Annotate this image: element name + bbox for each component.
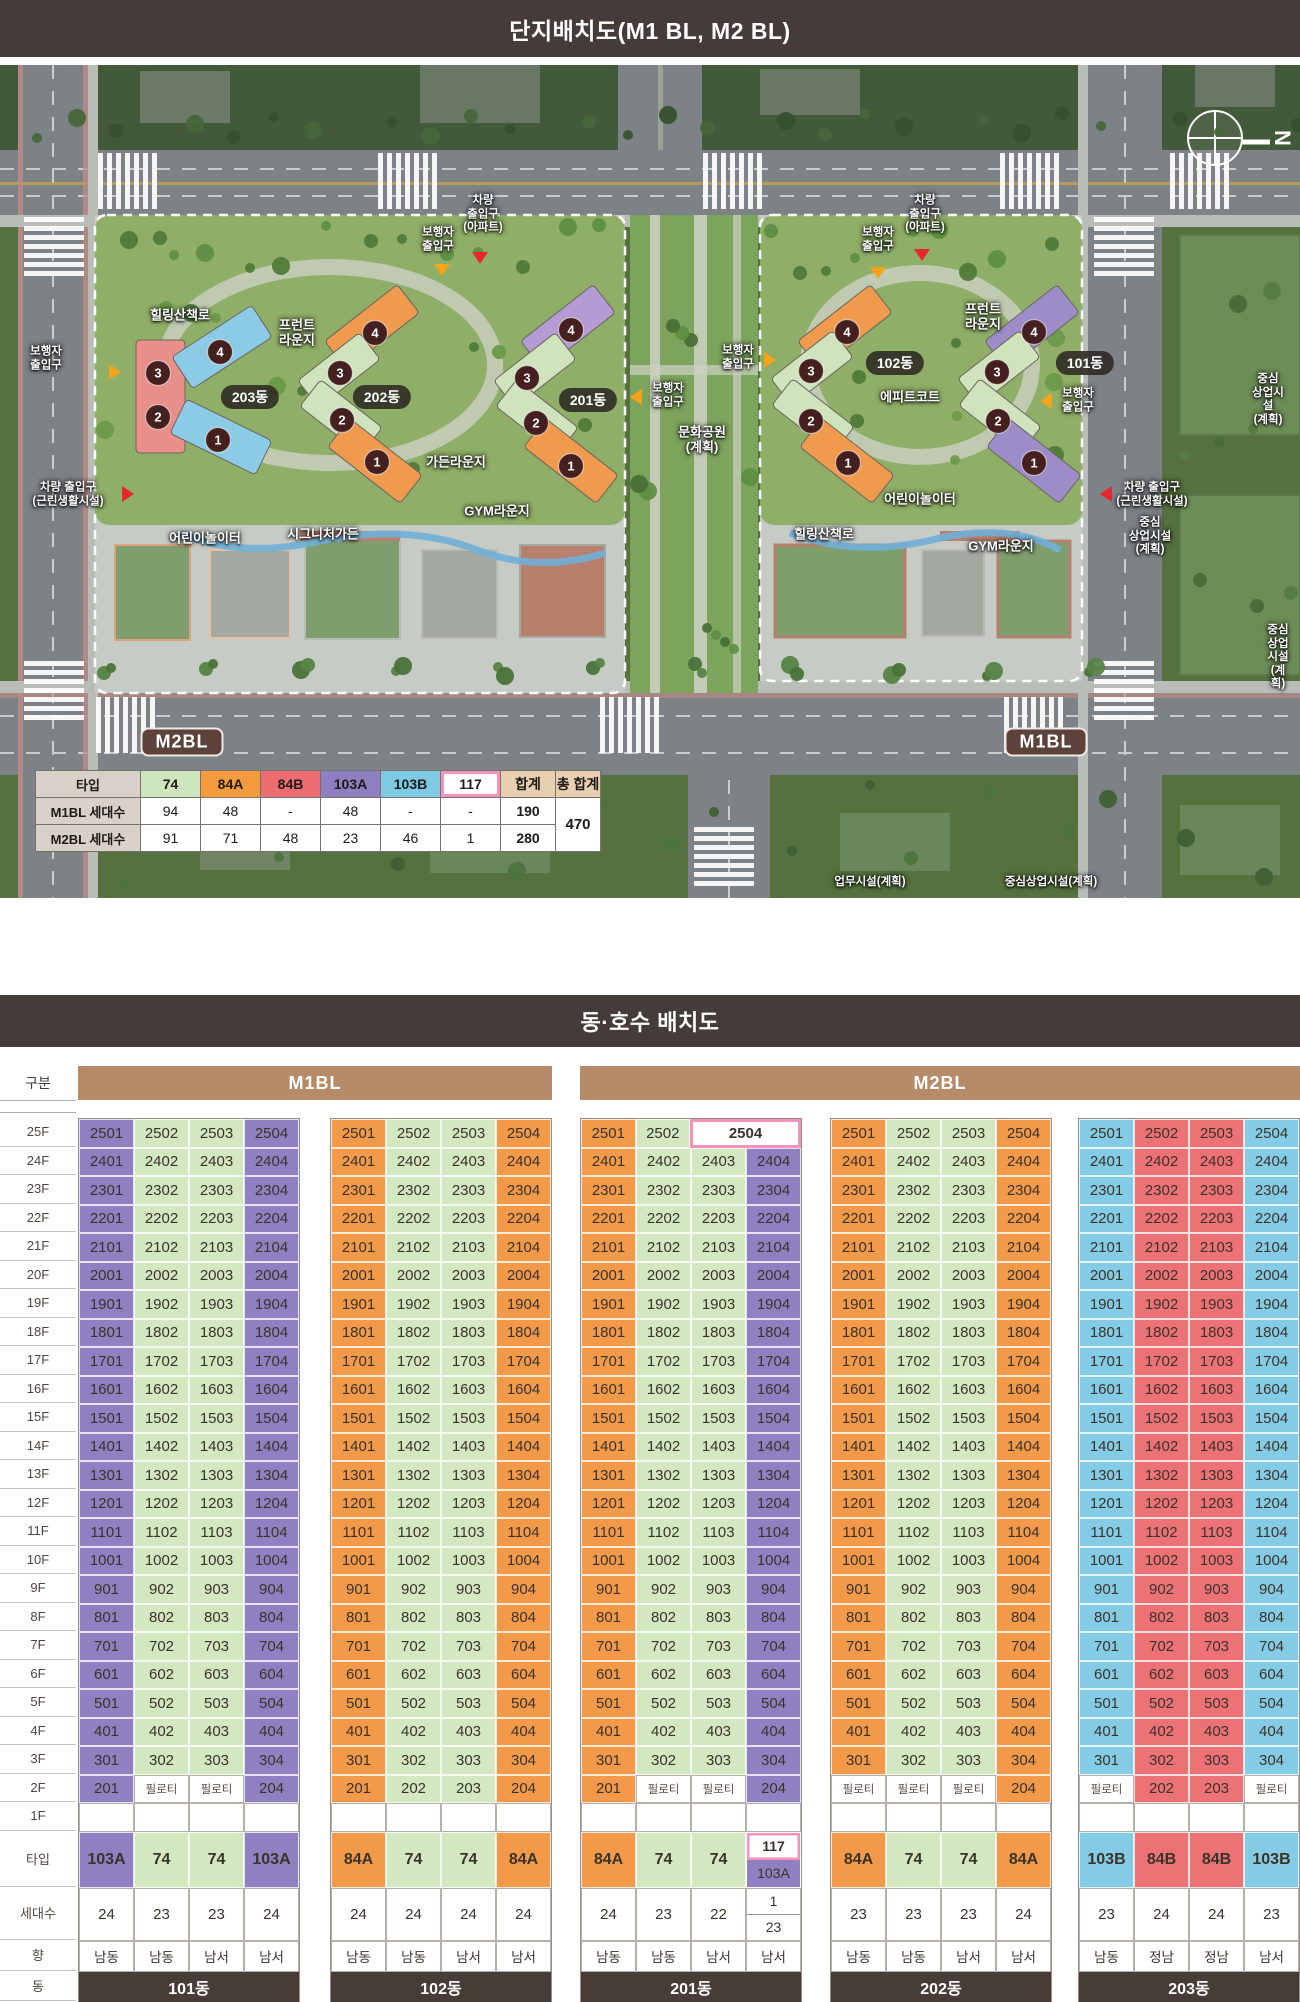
unit-cell <box>886 1803 941 1832</box>
unit-cell: 2001 <box>79 1262 134 1291</box>
entrance-label: 보행자 출입구 <box>1062 387 1094 414</box>
type-103B: 103B <box>381 771 441 798</box>
floor-label: 25F <box>0 1118 76 1147</box>
unit-cell: 2303 <box>691 1176 746 1205</box>
floor-label: 1F <box>0 1802 76 1831</box>
unit-cell: 1102 <box>636 1518 691 1547</box>
floor-row: 1401140214031404 <box>831 1433 1051 1462</box>
m1bl-total: 190 <box>501 798 556 825</box>
type-74: 74 <box>141 771 201 798</box>
type-row: 84A747484A <box>331 1832 551 1888</box>
unit-cell: 1702 <box>1134 1347 1189 1376</box>
unit-cell: 2302 <box>886 1176 941 1205</box>
floor-row: 2401240224032404 <box>581 1148 801 1177</box>
unit-cell: 1502 <box>886 1404 941 1433</box>
direction-row: 남동남동남서남서 <box>831 1941 1051 1972</box>
floor-row: 1901190219031904 <box>831 1290 1051 1319</box>
floor-row: 601602603604 <box>1079 1661 1299 1690</box>
unit-cell: 74 <box>886 1832 941 1888</box>
map-area-label: 프런트 라운지 <box>279 318 315 349</box>
unit-cell: 702 <box>386 1632 441 1661</box>
unit-cell: 1102 <box>1134 1518 1189 1547</box>
entrance-label: 차량 출입구 (근린생활시설) <box>32 481 103 508</box>
unit-cell: 504 <box>746 1689 801 1718</box>
unit-cell: 2301 <box>581 1176 636 1205</box>
unit-cell: 2403 <box>941 1148 996 1177</box>
unit-cell: 2204 <box>496 1205 551 1234</box>
unit-cell: 남서 <box>441 1941 496 1972</box>
unit-cell: 802 <box>886 1604 941 1633</box>
map-area-label: GYM라운지 <box>464 503 530 518</box>
count-value: 1 <box>747 1889 800 1915</box>
unit-cell: 604 <box>244 1661 299 1690</box>
direction-row: 남동남동남서남서 <box>79 1941 299 1972</box>
unit-cell: 2203 <box>691 1205 746 1234</box>
unit-cell: 23 <box>1244 1888 1299 1941</box>
floor-row: 2401240224032404 <box>831 1148 1051 1177</box>
unit-cell: 1501 <box>831 1404 886 1433</box>
floor-row-1f <box>1079 1803 1299 1832</box>
unit-cell: 1803 <box>1189 1319 1244 1348</box>
unit-cell: 2402 <box>636 1148 691 1177</box>
unit-cell: 23 <box>134 1888 189 1941</box>
floor-row: 701702703704 <box>1079 1632 1299 1661</box>
unit-cell: 202 <box>1134 1775 1189 1804</box>
unit-cell: 2202 <box>636 1205 691 1234</box>
floor-row: 2001200220032004 <box>79 1262 299 1291</box>
unit-cell: 2001 <box>831 1262 886 1291</box>
map-area-label: GYM라운지 <box>968 538 1034 553</box>
unit-cell: 2401 <box>79 1148 134 1177</box>
floor-row: 1201120212031204 <box>831 1490 1051 1519</box>
unit-type-summary-table: 타입 74 84A 84B 103A 103B 117 합계 총 합계 M1BL… <box>35 770 601 852</box>
floor-row: 1901190219031904 <box>79 1290 299 1319</box>
unit-cell: 1202 <box>134 1490 189 1519</box>
unit-cell: 남동 <box>134 1941 189 1972</box>
unit-cell: 703 <box>691 1632 746 1661</box>
unit-cell: 1404 <box>496 1433 551 1462</box>
unit-cell: 702 <box>886 1632 941 1661</box>
unit-cell: 204 <box>244 1775 299 1804</box>
unit-cell <box>996 1803 1051 1832</box>
unit-cell: 903 <box>941 1575 996 1604</box>
unit-cell: 401 <box>831 1718 886 1747</box>
unit-cell: 2502 <box>134 1119 189 1148</box>
count-row: 23232324 <box>831 1888 1051 1941</box>
building-pill: 201동 <box>559 388 617 412</box>
unit-cell: 1104 <box>996 1518 1051 1547</box>
unit-cell: 1002 <box>134 1547 189 1576</box>
unit-cell: 502 <box>1134 1689 1189 1718</box>
unit-cell: 902 <box>636 1575 691 1604</box>
entrance-arrow-icon <box>764 352 776 368</box>
unit-cell: 1701 <box>1079 1347 1134 1376</box>
unit-cell: 2004 <box>496 1262 551 1291</box>
floor-row: 2401240224032404 <box>79 1148 299 1177</box>
unit-cell: 84A <box>831 1832 886 1888</box>
unit-cell: 1604 <box>1244 1376 1299 1405</box>
unit-cell: 1601 <box>79 1376 134 1405</box>
unit-cell: 2001 <box>581 1262 636 1291</box>
floor-row: 501502503504 <box>79 1689 299 1718</box>
unit-cell: 2403 <box>441 1148 496 1177</box>
floor-label: 13F <box>0 1460 76 1489</box>
floor-row: 301302303304 <box>581 1746 801 1775</box>
floor-row: 2001200220032004 <box>1079 1262 1299 1291</box>
floor-row: 2101210221032104 <box>831 1233 1051 1262</box>
unit-cell: 704 <box>996 1632 1051 1661</box>
unit-cell: 302 <box>886 1746 941 1775</box>
unit-cell: 501 <box>1079 1689 1134 1718</box>
map-area-label: 중심 상업시설 (계획) <box>1267 624 1289 692</box>
floor-row-1f <box>831 1803 1051 1832</box>
unit-cell: 74 <box>386 1832 441 1888</box>
unit-cell: 2402 <box>134 1148 189 1177</box>
unit-cell: 2402 <box>386 1148 441 1177</box>
type-row: 84A7474117103A <box>581 1832 801 1888</box>
floor-label: 21F <box>0 1232 76 1261</box>
unit-cell: 1402 <box>1134 1433 1189 1462</box>
unit-cell: 1802 <box>636 1319 691 1348</box>
unit-cell: 1704 <box>244 1347 299 1376</box>
unit-cell: 204 <box>996 1775 1051 1804</box>
unit-cell: 남동 <box>636 1941 691 1972</box>
cell: 48 <box>261 825 321 852</box>
floor-row: 501502503504 <box>331 1689 551 1718</box>
unit-cell: 74 <box>941 1832 996 1888</box>
direction-row-label: 향 <box>0 1940 76 1971</box>
floor-row: 2101210221032104 <box>331 1233 551 1262</box>
cell: 48 <box>201 798 261 825</box>
unit-cell: 1902 <box>1134 1290 1189 1319</box>
floor-row: 1801180218031804 <box>831 1319 1051 1348</box>
cell: 91 <box>141 825 201 852</box>
type-117: 117 <box>747 1833 800 1860</box>
unit-cell: 1601 <box>581 1376 636 1405</box>
block-pill: M2BL <box>141 728 224 757</box>
unit-cell: 1004 <box>746 1547 801 1576</box>
unit-cell: 802 <box>134 1604 189 1633</box>
unit-cell: 1804 <box>1244 1319 1299 1348</box>
floor-label: 5F <box>0 1688 76 1717</box>
unit-cell: 1703 <box>441 1347 496 1376</box>
cell: - <box>441 798 501 825</box>
unit-cell: 2302 <box>1134 1176 1189 1205</box>
floor-row: 701702703704 <box>831 1632 1051 1661</box>
unit-cell: 1703 <box>941 1347 996 1376</box>
unit-cell <box>691 1803 746 1832</box>
unit-cell: 1304 <box>496 1461 551 1490</box>
entrance-arrow-icon <box>630 389 642 405</box>
entrance-label: 보행자 출입구 <box>422 226 454 253</box>
unit-cell: 1804 <box>244 1319 299 1348</box>
floor-label: 20F <box>0 1261 76 1290</box>
unit-cell: 1901 <box>581 1290 636 1319</box>
unit-cell: 1702 <box>386 1347 441 1376</box>
unit-cell: 904 <box>746 1575 801 1604</box>
floor-row: 601602603604 <box>79 1661 299 1690</box>
entrance-label: 차량 출입구 (아파트) <box>463 195 502 236</box>
unit-cell: 1503 <box>941 1404 996 1433</box>
count-row: 23242423 <box>1079 1888 1299 1941</box>
unit-cell: 601 <box>831 1661 886 1690</box>
floor-label: 4F <box>0 1717 76 1746</box>
unit-cell: 2104 <box>996 1233 1051 1262</box>
unit-cell: 1204 <box>996 1490 1051 1519</box>
unit-cell: 903 <box>441 1575 496 1604</box>
unit-cell: 1904 <box>996 1290 1051 1319</box>
floor-row: 301302303304 <box>831 1746 1051 1775</box>
floor-label: 9F <box>0 1574 76 1603</box>
floor-row: 1501150215031504 <box>1079 1404 1299 1433</box>
floor-row: 1301130213031304 <box>1079 1461 1299 1490</box>
building-name: 101동 <box>79 1972 299 2002</box>
unit-cell: 1104 <box>244 1518 299 1547</box>
unit-cell: 2202 <box>886 1205 941 1234</box>
unit-cell: 404 <box>996 1718 1051 1747</box>
unit-cell: 602 <box>1134 1661 1189 1690</box>
map-area-label: 중심 상업시설 (계획) <box>1252 373 1284 427</box>
unit-cell: 84A <box>996 1832 1051 1888</box>
unit-cell: 701 <box>581 1632 636 1661</box>
unit-cell: 401 <box>79 1718 134 1747</box>
unit-cell: 1201 <box>79 1490 134 1519</box>
unit-cell: 2103 <box>189 1233 244 1262</box>
floor-row: 1601160216031604 <box>831 1376 1051 1405</box>
unit-cell: 2003 <box>1189 1262 1244 1291</box>
unit-cell: 1701 <box>831 1347 886 1376</box>
unit-cell: 1103 <box>1189 1518 1244 1547</box>
floor-row: 901902903904 <box>1079 1575 1299 1604</box>
unit-cell: 2004 <box>996 1262 1051 1291</box>
unit-cell: 1002 <box>886 1547 941 1576</box>
m2bl-row-label: M2BL 세대수 <box>36 825 141 852</box>
unit-cell: 1301 <box>581 1461 636 1490</box>
unit-cell: 2304 <box>244 1176 299 1205</box>
unit-cell: 2304 <box>746 1176 801 1205</box>
unit-cell: 남서 <box>941 1941 996 1972</box>
map-area-label: 중심상업시설(계획) <box>1005 876 1097 890</box>
unit-cell: 1003 <box>691 1547 746 1576</box>
unit-cell: 504 <box>996 1689 1051 1718</box>
unit-cell: 1401 <box>831 1433 886 1462</box>
floor-row: 1001100210031004 <box>331 1547 551 1576</box>
unit-cell: 704 <box>496 1632 551 1661</box>
floor-row: 1701170217031704 <box>79 1347 299 1376</box>
unit-cell: 2404 <box>1244 1148 1299 1177</box>
unit-cell: 필로티 <box>1079 1775 1134 1804</box>
floor-row: 401402403404 <box>1079 1718 1299 1747</box>
unit-cell: 1201 <box>581 1490 636 1519</box>
unit-cell: 필로티 <box>691 1775 746 1804</box>
unit-cell: 2102 <box>886 1233 941 1262</box>
map-area-label: 에피트코트 <box>880 389 940 404</box>
floor-row: 1401140214031404 <box>581 1433 801 1462</box>
unit-cell: 1501 <box>581 1404 636 1433</box>
unit-cell: 2104 <box>244 1233 299 1262</box>
grand-total-header: 총 합계 <box>556 771 601 798</box>
unit-cell: 402 <box>636 1718 691 1747</box>
unit-cell: 2503 <box>441 1119 496 1148</box>
floor-row: 2001200220032004 <box>581 1262 801 1291</box>
unit-cell: 84A <box>496 1832 551 1888</box>
unit-cell: 2104 <box>1244 1233 1299 1262</box>
floor-row: 2201220222032204 <box>581 1205 801 1234</box>
unit-cell: 802 <box>636 1604 691 1633</box>
unit-cell: 23 <box>886 1888 941 1941</box>
unit-cell: 24 <box>244 1888 299 1941</box>
unit-cell: 1104 <box>496 1518 551 1547</box>
count-row: 242322123 <box>581 1888 801 1941</box>
brochure-page: 단지배치도(M1 BL, M2 BL) <box>0 0 1300 2002</box>
type-103A: 103A <box>747 1860 800 1887</box>
unit-cell: 602 <box>134 1661 189 1690</box>
unit-cell: 1004 <box>496 1547 551 1576</box>
type-84A: 84A <box>201 771 261 798</box>
unit-cell: 1402 <box>636 1433 691 1462</box>
map-area-label: 시그니처가든 <box>287 526 359 541</box>
unit-cell: 402 <box>1134 1718 1189 1747</box>
unit-cell: 901 <box>331 1575 386 1604</box>
unit-cell: 84A <box>581 1832 636 1888</box>
unit-cell: 1001 <box>331 1547 386 1576</box>
unit-cell: 24 <box>996 1888 1051 1941</box>
unit-cell: 1303 <box>1189 1461 1244 1490</box>
unit-cell: 1902 <box>134 1290 189 1319</box>
unit-cell: 1904 <box>244 1290 299 1319</box>
unit-cell: 남서 <box>1244 1941 1299 1972</box>
unit-cell: 2403 <box>1189 1148 1244 1177</box>
unit-cell: 1503 <box>691 1404 746 1433</box>
unit-cell: 2502 <box>636 1119 691 1148</box>
unit-cell: 604 <box>746 1661 801 1690</box>
unit-cell: 2003 <box>941 1262 996 1291</box>
unit-cell: 23 <box>636 1888 691 1941</box>
floor-row: 2501250225032504 <box>831 1119 1051 1148</box>
unit-cell: 404 <box>1244 1718 1299 1747</box>
entrance-label: 차량 출입구 (아파트) <box>905 195 944 236</box>
cell: 23 <box>321 825 381 852</box>
unit-cell: 301 <box>331 1746 386 1775</box>
unit-cell: 2103 <box>941 1233 996 1262</box>
floor-row: 1701170217031704 <box>831 1347 1051 1376</box>
unit-cell: 1404 <box>1244 1433 1299 1462</box>
unit-cell: 1801 <box>581 1319 636 1348</box>
unit-cell: 304 <box>746 1746 801 1775</box>
unit-cell: 1702 <box>636 1347 691 1376</box>
unit-cell: 704 <box>746 1632 801 1661</box>
count-split-cell: 123 <box>746 1888 801 1941</box>
unit-cell: 503 <box>941 1689 996 1718</box>
floor-row: 2301230223032304 <box>331 1176 551 1205</box>
unit-cell: 103B <box>1079 1832 1134 1888</box>
unit-cell: 303 <box>1189 1746 1244 1775</box>
unit-cell: 2101 <box>831 1233 886 1262</box>
unit-cell: 502 <box>886 1689 941 1718</box>
m1bl-row-label: M1BL 세대수 <box>36 798 141 825</box>
unit-cell: 1204 <box>746 1490 801 1519</box>
unit-cell: 1103 <box>941 1518 996 1547</box>
unit-cell: 301 <box>1079 1746 1134 1775</box>
building-name-row: 101동 <box>79 1972 299 2002</box>
unit-cell: 1404 <box>244 1433 299 1462</box>
table-row: M1BL 세대수 94 48 - 48 - - 190 470 <box>36 798 601 825</box>
floor-row: 2101210221032104 <box>581 1233 801 1262</box>
unit-cell: 901 <box>831 1575 886 1604</box>
unit-cell: 2304 <box>996 1176 1051 1205</box>
unit-cell: 603 <box>189 1661 244 1690</box>
floor-row: 901902903904 <box>331 1575 551 1604</box>
floor-row: 1201120212031204 <box>1079 1490 1299 1519</box>
unit-cell: 803 <box>941 1604 996 1633</box>
floor-row: 2501250225032504 <box>79 1119 299 1148</box>
floor-row-2f: 201필로티필로티204 <box>581 1775 801 1804</box>
unit-cell: 1203 <box>691 1490 746 1519</box>
unit-cell: 2402 <box>886 1148 941 1177</box>
unit-cell: 23 <box>941 1888 996 1941</box>
unit-cell: 2302 <box>386 1176 441 1205</box>
floor-row: 901902903904 <box>79 1575 299 1604</box>
unit-cell <box>1244 1803 1299 1832</box>
unit-cell: 502 <box>386 1689 441 1718</box>
cell: 46 <box>381 825 441 852</box>
unit-cell: 1803 <box>941 1319 996 1348</box>
unit-cell: 1902 <box>636 1290 691 1319</box>
unit-cell: 2004 <box>746 1262 801 1291</box>
unit-cell <box>496 1803 551 1832</box>
unit-cell: 904 <box>996 1575 1051 1604</box>
unit-cell: 2204 <box>244 1205 299 1234</box>
unit-cell: 403 <box>441 1718 496 1747</box>
unit-cell: 2302 <box>134 1176 189 1205</box>
unit-cell: 702 <box>636 1632 691 1661</box>
floor-row: 1801180218031804 <box>331 1319 551 1348</box>
unit-cell: 904 <box>496 1575 551 1604</box>
unit-cell: 1301 <box>331 1461 386 1490</box>
count-value: 23 <box>747 1915 800 1940</box>
unit-cell: 1302 <box>134 1461 189 1490</box>
unit-cell: 1102 <box>386 1518 441 1547</box>
map-area-label: 어린이놀이터 <box>169 530 241 545</box>
unit-cell: 1903 <box>189 1290 244 1319</box>
floor-row: 1301130213031304 <box>331 1461 551 1490</box>
floor-row-1f <box>331 1803 551 1832</box>
unit-cell: 84B <box>1189 1832 1244 1888</box>
entrance-label: 보행자 출입구 <box>722 344 754 371</box>
unit-cell: 남동 <box>79 1941 134 1972</box>
unit-cell: 803 <box>691 1604 746 1633</box>
floor-row: 901902903904 <box>831 1575 1051 1604</box>
unit-cell: 1301 <box>79 1461 134 1490</box>
floor-row: 901902903904 <box>581 1575 801 1604</box>
unit-cell: 1504 <box>496 1404 551 1433</box>
unit-cell: 603 <box>1189 1661 1244 1690</box>
unit-cell: 703 <box>1189 1632 1244 1661</box>
unit-cell: 501 <box>831 1689 886 1718</box>
unit-cell: 1402 <box>386 1433 441 1462</box>
table-row: M2BL 세대수 91 71 48 23 46 1 280 <box>36 825 601 852</box>
unit-cell: 1203 <box>441 1490 496 1519</box>
unit-cell: 402 <box>886 1718 941 1747</box>
entrance-label: 보행자 출입구 <box>30 345 62 372</box>
unit-cell: 502 <box>636 1689 691 1718</box>
unit-cell: 2504 <box>690 1119 801 1148</box>
building-block-101동: 2501250225032504240124022403240423012302… <box>78 1118 300 2002</box>
unit-cell: 22 <box>691 1888 746 1941</box>
unit-cell: 1704 <box>746 1347 801 1376</box>
cell: 48 <box>321 798 381 825</box>
unit-cell: 1003 <box>441 1547 496 1576</box>
